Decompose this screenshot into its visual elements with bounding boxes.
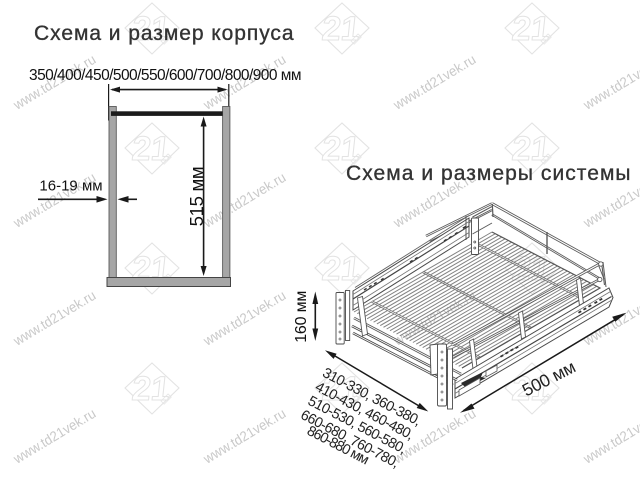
svg-text:160 мм: 160 мм — [293, 291, 310, 343]
svg-text:www.td21vek.ru: www.td21vek.ru — [200, 287, 289, 349]
svg-text:www.td21vek.ru: www.td21vek.ru — [10, 287, 99, 349]
svg-text:www.td21vek.ru: www.td21vek.ru — [390, 51, 479, 113]
svg-text:www.td21vek.ru: www.td21vek.ru — [10, 405, 99, 467]
svg-text:515 мм: 515 мм — [186, 167, 207, 227]
svg-text:www.td21vek.ru: www.td21vek.ru — [580, 51, 640, 113]
svg-text:www.td21vek.ru: www.td21vek.ru — [200, 405, 289, 467]
svg-text:www.td21vek.ru: www.td21vek.ru — [200, 169, 289, 231]
svg-text:www.td21vek.ru: www.td21vek.ru — [580, 405, 640, 467]
